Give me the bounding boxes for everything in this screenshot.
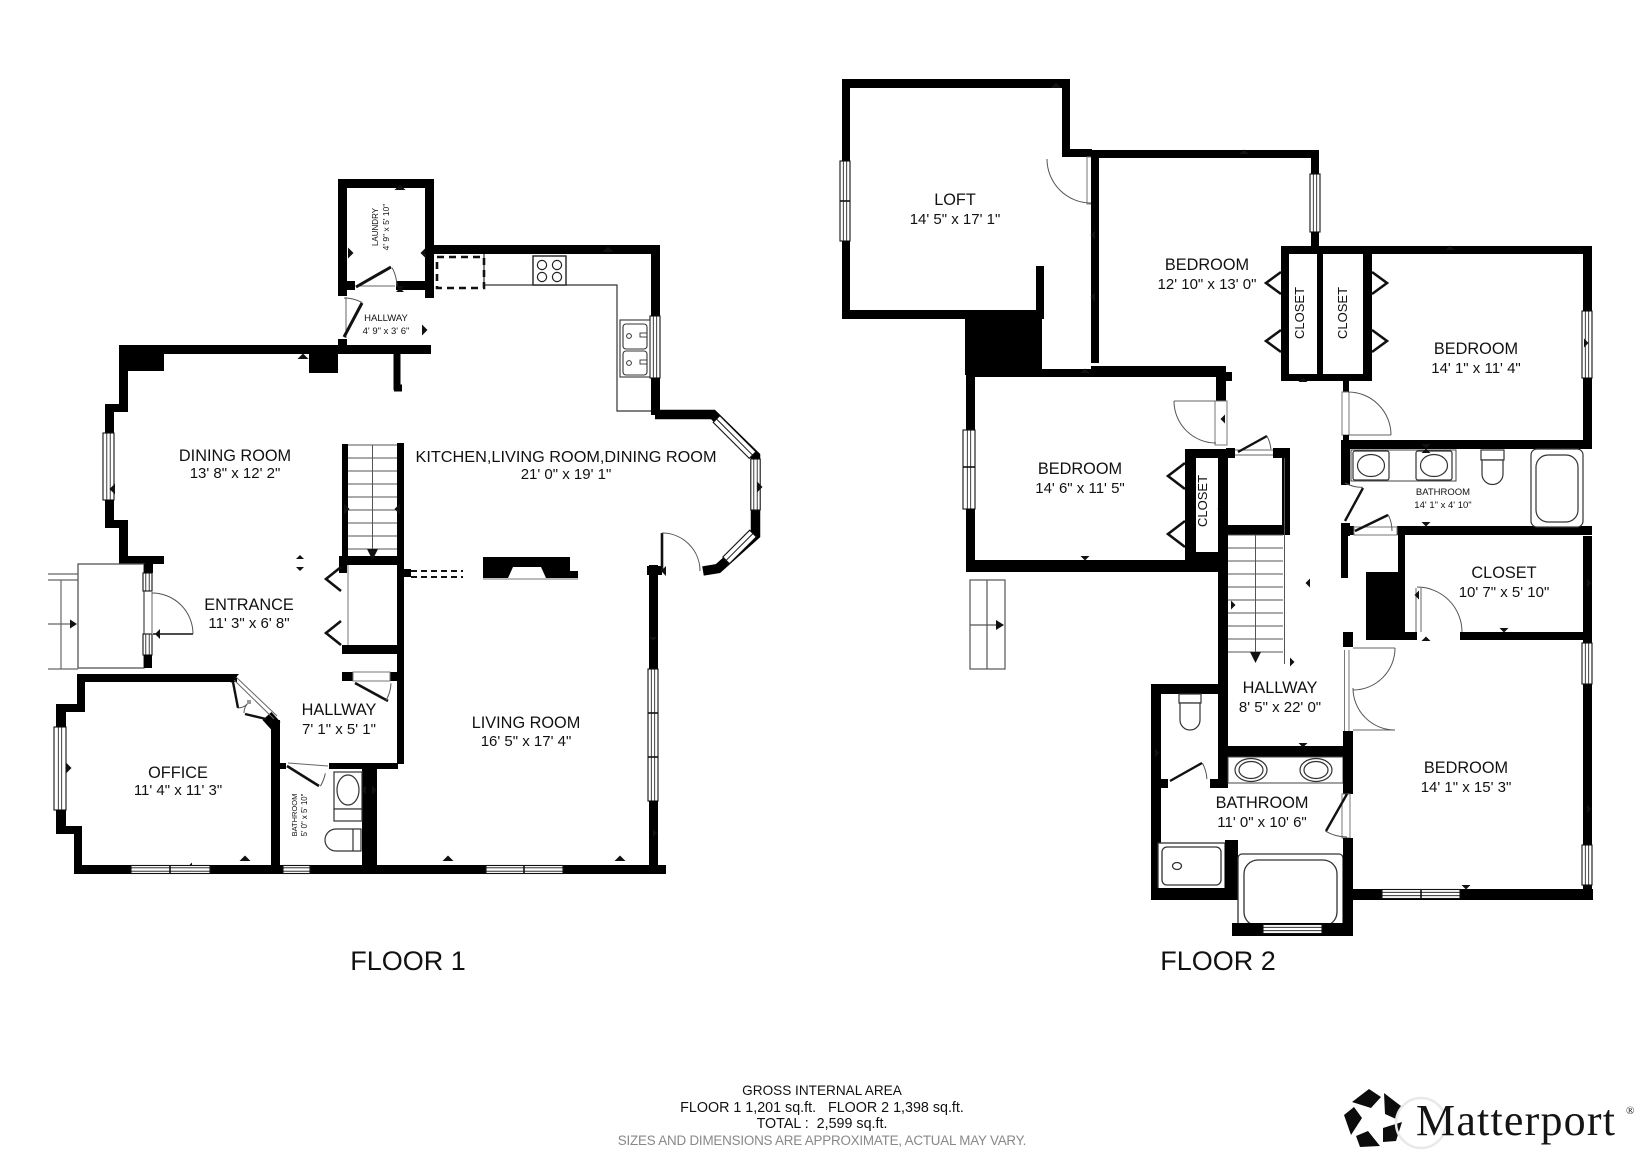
svg-text:BEDROOM: BEDROOM — [1165, 256, 1249, 274]
svg-text:FLOOR 1 1,201 sq.ft. FLOOR 2: FLOOR 1 1,201 sq.ft. FLOOR 2 1,398 sq.ft… — [680, 1100, 964, 1116]
svg-text:FLOOR 2: FLOOR 2 — [1160, 946, 1276, 976]
svg-text:14' 1" x 11' 4": 14' 1" x 11' 4" — [1431, 360, 1521, 377]
svg-text:ENTRANCE: ENTRANCE — [204, 596, 294, 614]
svg-text:CLOSET: CLOSET — [1471, 564, 1536, 582]
svg-text:DINING ROOM: DINING ROOM — [179, 447, 291, 465]
svg-text:CLOSET: CLOSET — [1335, 287, 1350, 339]
svg-text:11' 0" x 10' 6": 11' 0" x 10' 6" — [1217, 814, 1307, 831]
svg-text:4' 9" x 3' 6": 4' 9" x 3' 6" — [363, 326, 410, 337]
svg-text:BATHROOM: BATHROOM — [290, 794, 299, 837]
svg-text:BATHROOM: BATHROOM — [1416, 487, 1470, 498]
svg-text:LIVING ROOM: LIVING ROOM — [472, 714, 581, 732]
svg-text:10' 7" x 5' 10": 10' 7" x 5' 10" — [1459, 584, 1550, 601]
svg-text:®: ® — [1626, 1105, 1634, 1117]
svg-text:14' 1" x 15' 3": 14' 1" x 15' 3" — [1421, 779, 1512, 796]
svg-text:14' 5" x 17' 1": 14' 5" x 17' 1" — [910, 211, 1001, 228]
svg-text:BATHROOM: BATHROOM — [1216, 794, 1309, 812]
svg-text:CLOSET: CLOSET — [1292, 287, 1307, 339]
svg-text:14' 1" x 4' 10": 14' 1" x 4' 10" — [1414, 500, 1471, 511]
svg-text:12' 10" x 13' 0": 12' 10" x 13' 0" — [1158, 276, 1257, 293]
svg-text:8' 5" x 22' 0": 8' 5" x 22' 0" — [1239, 699, 1321, 716]
svg-text:OFFICE: OFFICE — [148, 764, 208, 782]
svg-text:21' 0" x 19' 1": 21' 0" x 19' 1" — [521, 466, 612, 483]
svg-text:4' 9" x 5' 10": 4' 9" x 5' 10" — [381, 204, 391, 251]
svg-text:7' 1" x 5' 1": 7' 1" x 5' 1" — [302, 721, 376, 738]
svg-text:Matterport: Matterport — [1416, 1096, 1616, 1145]
svg-text:HALLWAY: HALLWAY — [302, 701, 377, 719]
svg-text:SIZES AND DIMENSIONS ARE APPRO: SIZES AND DIMENSIONS ARE APPROXIMATE, AC… — [618, 1133, 1026, 1148]
svg-text:16' 5" x 17' 4": 16' 5" x 17' 4" — [481, 733, 572, 750]
svg-text:BEDROOM: BEDROOM — [1434, 340, 1518, 358]
svg-text:TOTAL : 2,599 sq.ft.: TOTAL : 2,599 sq.ft. — [757, 1116, 888, 1132]
svg-text:HALLWAY: HALLWAY — [1243, 679, 1318, 697]
svg-text:11' 4" x 11' 3": 11' 4" x 11' 3" — [134, 782, 222, 799]
svg-text:13' 8" x 12' 2": 13' 8" x 12' 2" — [190, 465, 281, 482]
svg-text:5' 0" x 5' 10": 5' 0" x 5' 10" — [300, 793, 309, 836]
svg-text:11' 3" x 6' 8": 11' 3" x 6' 8" — [208, 615, 289, 632]
svg-text:LAUNDRY: LAUNDRY — [371, 207, 380, 246]
svg-text:GROSS INTERNAL AREA: GROSS INTERNAL AREA — [742, 1083, 903, 1098]
svg-text:14' 6" x 11' 5": 14' 6" x 11' 5" — [1035, 480, 1125, 497]
svg-text:BEDROOM: BEDROOM — [1038, 460, 1122, 478]
svg-text:HALLWAY: HALLWAY — [364, 313, 408, 324]
svg-text:BEDROOM: BEDROOM — [1424, 759, 1508, 777]
svg-text:KITCHEN,LIVING ROOM,DINING ROO: KITCHEN,LIVING ROOM,DINING ROOM — [416, 449, 717, 466]
svg-text:LOFT: LOFT — [934, 191, 976, 209]
svg-text:FLOOR 1: FLOOR 1 — [350, 946, 466, 976]
svg-text:CLOSET: CLOSET — [1195, 475, 1210, 527]
